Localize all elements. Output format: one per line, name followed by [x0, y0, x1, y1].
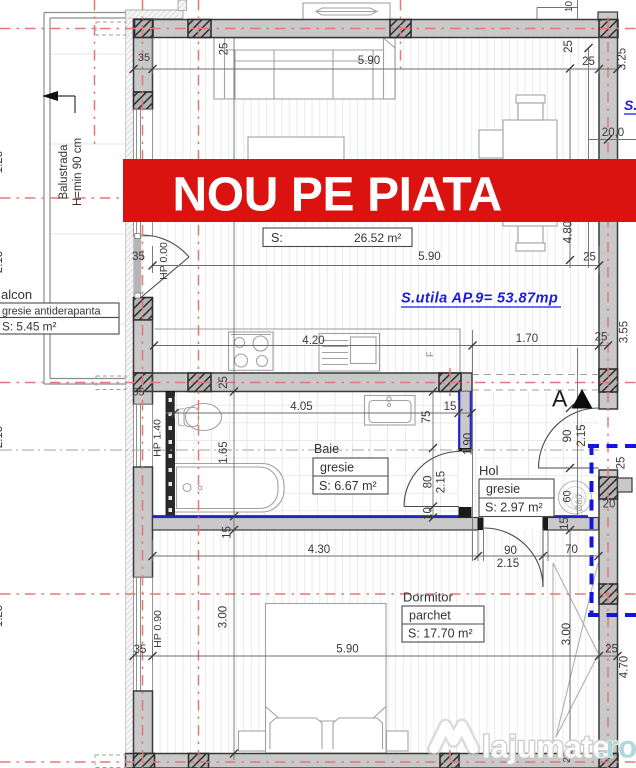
svg-text:25: 25	[605, 644, 618, 656]
svg-text:35: 35	[134, 644, 147, 656]
svg-text:2.15: 2.15	[576, 424, 588, 446]
svg-text:90: 90	[562, 430, 574, 443]
svg-text:5.90: 5.90	[358, 55, 380, 67]
svg-text:parchet: parchet	[409, 609, 451, 623]
svg-text:Ø60: Ø60	[574, 494, 584, 511]
svg-text:Baie: Baie	[314, 442, 339, 456]
svg-text:25: 25	[563, 40, 575, 53]
svg-text:NOU PE PIATA: NOU PE PIATA	[173, 169, 502, 222]
svg-text:3.00: 3.00	[561, 623, 573, 645]
svg-text:HP 0.00: HP 0.00	[158, 242, 170, 280]
svg-text:4.70: 4.70	[619, 656, 631, 678]
svg-text:25: 25	[583, 252, 596, 264]
svg-text:1.90: 1.90	[463, 433, 475, 455]
svg-text:25: 25	[616, 457, 628, 470]
svg-text:25: 25	[218, 376, 230, 389]
svg-text:3.25: 3.25	[617, 48, 629, 70]
svg-text:.ro: .ro	[597, 729, 636, 765]
svg-text:2.15: 2.15	[436, 471, 448, 493]
svg-text:35: 35	[132, 387, 144, 399]
svg-text:S: 6.67 m²: S: 6.67 m²	[319, 479, 377, 493]
svg-text:75: 75	[421, 411, 433, 424]
svg-text:5.90: 5.90	[336, 644, 358, 656]
svg-text:15: 15	[444, 401, 457, 413]
svg-text:4.05: 4.05	[290, 401, 312, 413]
svg-text:1.25: 1.25	[0, 151, 5, 173]
svg-text:20: 20	[603, 499, 616, 511]
svg-text:90: 90	[504, 545, 517, 557]
svg-text:70: 70	[565, 544, 578, 556]
svg-text:H=min 90 cm: H=min 90 cm	[72, 138, 84, 206]
svg-text:S:: S:	[271, 231, 283, 245]
svg-text:Hol: Hol	[479, 463, 499, 478]
svg-text:15: 15	[559, 517, 571, 530]
svg-text:1.65: 1.65	[218, 441, 230, 463]
svg-text:4.30: 4.30	[308, 544, 330, 556]
svg-text:gresie: gresie	[320, 461, 354, 475]
svg-text:80: 80	[423, 476, 435, 489]
svg-text:Dormitor: Dormitor	[403, 590, 454, 605]
svg-text:S: 2.97 m²: S: 2.97 m²	[485, 501, 543, 515]
svg-text:S: 17.70 m²: S: 17.70 m²	[408, 627, 473, 641]
svg-text:10: 10	[564, 1, 575, 13]
svg-text:Balustrada: Balustrada	[58, 144, 70, 200]
svg-text:25: 25	[219, 43, 231, 56]
svg-text:20,0: 20,0	[602, 127, 624, 139]
svg-text:S: 5.45 m²: S: 5.45 m²	[2, 320, 56, 334]
svg-text:15: 15	[222, 526, 234, 539]
svg-text:4.20: 4.20	[302, 335, 324, 347]
svg-text:HP 0.90: HP 0.90	[152, 610, 164, 648]
svg-text:1.70: 1.70	[516, 333, 538, 345]
svg-text:60: 60	[562, 490, 574, 502]
svg-text:3.55: 3.55	[619, 321, 631, 343]
svg-text:5.90: 5.90	[418, 251, 440, 263]
svg-text:2.15: 2.15	[0, 426, 5, 448]
svg-text:A: A	[552, 386, 568, 412]
svg-text:HP 1.40: HP 1.40	[152, 419, 164, 457]
svg-text:3.00: 3.00	[218, 606, 230, 628]
svg-text:35: 35	[138, 52, 150, 64]
svg-text:10: 10	[423, 507, 435, 520]
svg-text:26.52 m²: 26.52 m²	[354, 231, 401, 245]
svg-text:gresie: gresie	[486, 482, 520, 496]
svg-text:1.25: 1.25	[0, 605, 5, 627]
svg-text:S.utila AP.9= 53.87mp: S.utila AP.9= 53.87mp	[401, 291, 558, 307]
svg-text:4.80: 4.80	[563, 221, 575, 243]
svg-text:35: 35	[132, 251, 145, 263]
svg-text:25: 25	[595, 332, 608, 344]
svg-text:F: F	[425, 351, 435, 357]
svg-text:S.: S.	[624, 97, 636, 113]
svg-text:2.15: 2.15	[0, 251, 5, 273]
svg-text:2.15: 2.15	[497, 558, 519, 570]
svg-text:gresie antiderapanta: gresie antiderapanta	[2, 306, 100, 318]
svg-text:25: 25	[582, 56, 595, 68]
svg-text:alcon: alcon	[1, 287, 32, 302]
svg-text:lajumate: lajumate	[482, 729, 610, 765]
